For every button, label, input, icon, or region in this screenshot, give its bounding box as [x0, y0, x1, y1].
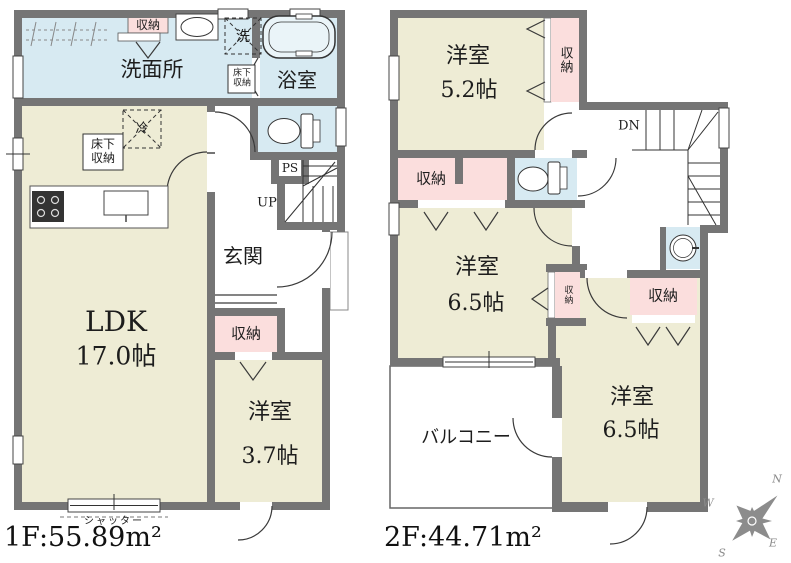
- washroom-label: 洗面所: [121, 60, 184, 81]
- bathtub: [263, 14, 335, 58]
- laundry-space-label: 洗: [236, 30, 250, 44]
- bedroom52-closet-label: 収納: [559, 46, 572, 74]
- washroom-closet-label: 収納: [136, 19, 160, 31]
- underfloor-line2: 収納: [233, 79, 251, 89]
- compass-rose: [717, 480, 791, 559]
- between-closet-label: 収納: [563, 285, 572, 305]
- compass-north-label: N: [772, 474, 782, 485]
- floorplan-page: 洗面所 収納 洗 浴室 床下収納 床下収納 冷 LDK 17.0帖 PS UP …: [0, 0, 791, 563]
- pipe-space-label: PS: [282, 162, 298, 174]
- stairs-down-label: DN: [618, 120, 640, 133]
- compass-south-label: S: [718, 548, 726, 559]
- underfloor-line1: 床下: [91, 137, 115, 151]
- bathroom-label: 浴室: [277, 70, 317, 90]
- bedroom52-name-label: 洋室: [446, 46, 490, 68]
- floor2-area-label: 2F:44.71m²: [384, 524, 542, 551]
- ldk-size-label: 17.0帖: [76, 344, 157, 369]
- underfloor-storage-label-ldk: 床下収納: [91, 138, 115, 166]
- compass-west-label: W: [702, 498, 713, 509]
- bedroom52-size-label: 5.2帖: [441, 80, 498, 102]
- fridge-space-label: 冷: [135, 123, 148, 136]
- floorplan-canvas: [0, 0, 791, 563]
- bedroom65r-name-label: 洋室: [610, 387, 654, 409]
- underfloor-line1: 床下: [233, 69, 251, 79]
- entrance-label: 玄関: [223, 246, 263, 266]
- western-room37-size-label: 3.7帖: [242, 446, 299, 468]
- bedroom65r-size-label: 6.5帖: [603, 420, 660, 442]
- bedroom65l-floor: [398, 208, 572, 358]
- kitchen-sink: [104, 191, 148, 215]
- stove: [32, 191, 64, 222]
- hall-closet2-box: [398, 158, 507, 200]
- kitchen-counter: [30, 186, 168, 228]
- western-room-37-floor: [215, 360, 322, 502]
- hall-closet2-label: 収納: [416, 172, 446, 187]
- western-room37-name-label: 洋室: [248, 402, 292, 424]
- bedroom65r-closet-label: 収納: [648, 289, 678, 304]
- washroom-sink: [176, 14, 218, 40]
- underfloor-line2: 収納: [91, 151, 115, 165]
- washroom-closet-shelf: [118, 33, 160, 41]
- stairs-up-label: UP: [257, 197, 277, 210]
- floor1-area-label: 1F:55.89m²: [4, 524, 162, 551]
- bedroom65l-name-label: 洋室: [455, 257, 499, 279]
- bedroom65l-size-label: 6.5帖: [448, 293, 505, 315]
- between-closet-door: [548, 272, 555, 318]
- bedroom52-closet-door: [544, 18, 551, 102]
- hall-closet-label: 収納: [231, 327, 261, 342]
- floor2-stairs: [632, 110, 720, 225]
- underfloor-storage-label-wash: 床下収納: [233, 69, 251, 90]
- balcony-label: バルコニー: [421, 429, 511, 447]
- ldk-name-label: LDK: [85, 308, 147, 336]
- entrance-porch: [330, 232, 348, 310]
- compass-east-label: E: [769, 538, 777, 549]
